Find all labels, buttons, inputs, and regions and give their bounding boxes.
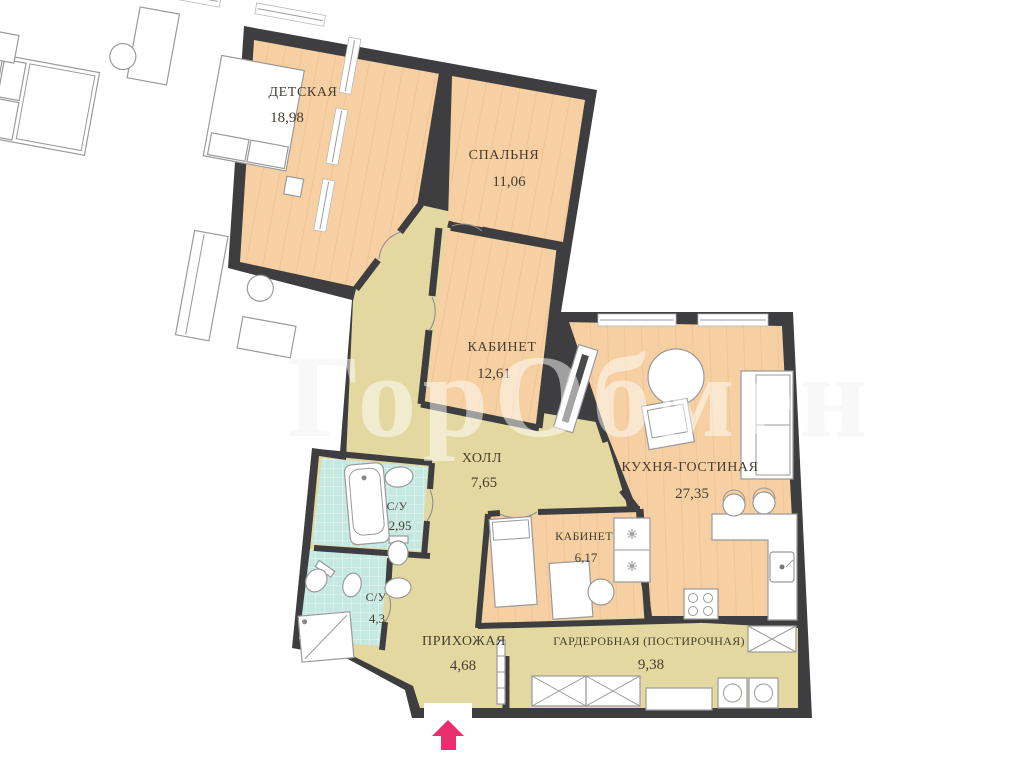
kids-bed [0,55,100,155]
room-label-kitchen: КУХНЯ-ГОСТИНАЯ [621,460,758,475]
room-area-wc2: 4,3 [369,611,385,626]
room-label-garderobnaya: ГАРДЕРОБНАЯ (ПОСТИРОЧНАЯ) [553,634,745,648]
room-label-spalnya: СПАЛЬНЯ [469,148,540,163]
washing-machine-2 [749,678,778,708]
room-label-detskaya: ДЕТСКАЯ [269,85,338,100]
room-area-spalnya: 11,06 [492,174,526,190]
watermark-text: ГорОбмен [287,331,874,462]
study2-desk [549,561,593,620]
wc1-toilet [388,536,408,565]
stove [684,589,718,619]
room-label-wc1: С/У [387,499,408,513]
study1-sofa [176,230,229,340]
laundry-counter [646,688,712,710]
room-area-detskaya: 18,98 [270,110,304,126]
wardrobe-x-box-3 [748,626,796,652]
room-label-kabinet2: КАБИНЕТ [555,529,613,543]
wardrobe-x-box-2 [586,676,640,706]
bathtub [344,462,390,545]
entrance-door-gap [424,703,472,719]
hallway-closet [497,640,505,704]
entrance-arrow [432,720,464,750]
study2-chair [588,579,614,605]
room-area-garderobnaya: 9,38 [638,657,664,673]
shower-tray [298,612,354,662]
room-label-wc2: С/У [366,590,387,604]
room-area-hall: 7,65 [471,475,497,491]
bedroom-nightstand [284,176,304,197]
fridge-cabinet [614,518,650,582]
floor-plan: ГорОбмен [0,0,1024,768]
kids-desk [127,7,179,85]
wardrobe-x-box-1 [532,676,586,706]
room-area-wc1: 2,95 [389,518,412,533]
room-label-prihozhaya: ПРИХОЖАЯ [422,634,506,649]
washing-machine-1 [718,678,747,708]
kitchen-sink [770,552,794,582]
room-area-kitchen: 27,35 [675,486,709,502]
room-area-prihozhaya: 4,68 [450,658,476,674]
study2-bed [489,517,537,608]
room-area-kabinet2: 6,17 [575,550,598,565]
floor-plan-page: ГорОбмен [0,0,1024,768]
